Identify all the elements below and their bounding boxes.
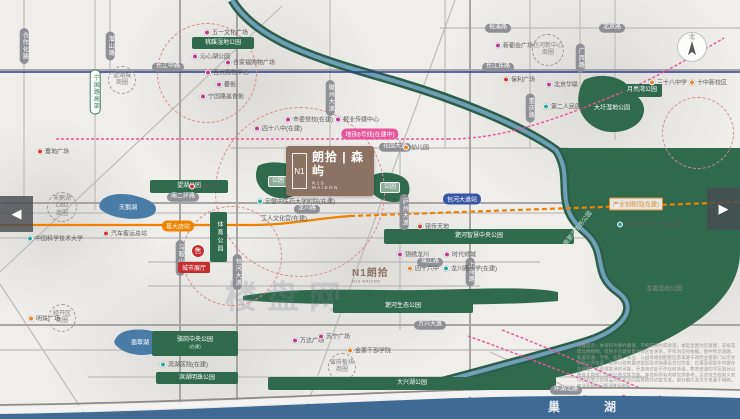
poi-dot-icon xyxy=(443,265,449,271)
poi-label: 第二人民医院 xyxy=(551,102,587,111)
poi-label: 明珠广场 xyxy=(36,314,60,323)
road-pill: 合作化路 xyxy=(20,28,29,64)
road-pill: 长江中路 xyxy=(152,63,184,72)
circle-line1: 省府板块 xyxy=(330,360,354,368)
poi-item: 三十八中学 xyxy=(649,78,687,87)
poi-item: 工人文化宫(在建) xyxy=(261,214,307,223)
road-pill: 重庆路 xyxy=(526,94,535,123)
poi-label: 龙川路小学(在建) xyxy=(451,264,497,273)
circle-line2: 商圈 xyxy=(116,80,128,88)
poi-item: 苏宁广场 xyxy=(318,332,350,341)
poi-label: 锦绣龙川 xyxy=(405,250,429,259)
poi-dot-icon xyxy=(28,315,34,321)
poi-dot-icon xyxy=(649,79,655,85)
park-bar: 淝河智慧中央公园 xyxy=(384,229,574,244)
road-pill: 广西路 xyxy=(576,44,585,73)
poi-label: 滨湖医院(在建) xyxy=(168,360,208,369)
poi-dot-icon xyxy=(495,42,501,48)
park-bar: 公园 xyxy=(380,182,400,193)
poi-item: 第二人民医院 xyxy=(543,102,587,111)
poi-label: 百大购物中心 xyxy=(213,68,249,77)
project-name-en: N1S MAISON xyxy=(312,182,354,191)
road-pill: 庐州大道 xyxy=(400,194,409,230)
poi-item: 十中新校区 xyxy=(689,78,727,87)
poi-label: 市委党校(在建) xyxy=(293,115,333,124)
poi-item: 滨湖医院(在建) xyxy=(160,360,208,369)
project-logo: N1 朗拾 | 森屿 N1S MAISON xyxy=(286,146,374,196)
poi-item: 四十六中 xyxy=(407,264,439,273)
poi-label: 铭传天地 xyxy=(425,222,449,231)
poi-item: 龙川路小学(在建) xyxy=(443,264,497,273)
poi-dot-icon xyxy=(417,223,423,229)
circle-line1: 天鹅湖CBD xyxy=(48,196,76,211)
poi-label: 罍街 xyxy=(224,80,236,89)
park-bar: 淝河生态公园 xyxy=(333,300,473,313)
project-name-cn: 朗拾 | 森屿 xyxy=(312,150,368,179)
road-pill: 宁国路高架 xyxy=(90,70,101,115)
poi-dot-icon xyxy=(444,251,450,257)
park-name: 淝河智慧中央公园 xyxy=(455,233,503,240)
poi-label: 汽车客运总站 xyxy=(111,229,147,238)
poi-item: 明珠广场 xyxy=(28,314,60,323)
circle-line2: 商圈 xyxy=(542,50,554,58)
park-name: 公园 xyxy=(272,178,284,185)
poi-label: 中国科学技术大学 xyxy=(35,234,83,243)
poi-dot-icon xyxy=(204,29,210,35)
poi-item: 百大购物中心 xyxy=(205,68,249,77)
carousel-prev-button[interactable]: ◀ xyxy=(0,196,33,232)
poi-item: 四十八中(在建) xyxy=(254,124,302,133)
poi-dot-icon xyxy=(407,265,413,271)
poi-item: 报业传媒中心 xyxy=(335,115,379,124)
road-pill: 南二环路 xyxy=(167,193,199,202)
poi-label: 五一文化广场 xyxy=(212,28,248,37)
park-bar: 桃蹊湿地公园 xyxy=(192,37,254,49)
poi-dot-icon xyxy=(160,361,166,367)
poi-label: 十中新校区 xyxy=(697,78,727,87)
park-name: 公园 xyxy=(384,184,396,191)
park-name: 滨湖明珠公园 xyxy=(179,375,215,382)
circle-line2: 商圈 xyxy=(56,211,68,219)
poi-item: 置地广场 xyxy=(37,147,69,156)
sales-center-icon: 售 xyxy=(191,244,205,258)
poi-label: 新都会广场 xyxy=(503,41,533,50)
poi-label: 合家福购物广场 xyxy=(233,58,275,67)
metro-line-pink-label: 地铁6号线(在建中) xyxy=(341,129,398,140)
business-circle: 望湖城商圈 xyxy=(108,66,136,94)
location-map: 楼盘网 合作化路潜山路宁国路高架马鞍山路包河大道徽州大道庐州大道上海路重庆路广西… xyxy=(0,0,740,419)
poi-dot-icon xyxy=(318,333,324,339)
sales-center-label: 城市展厅 xyxy=(178,262,210,273)
poi-label: 金寨干部学院 xyxy=(355,346,391,355)
poi-dot-icon xyxy=(257,198,263,204)
poi-dot-icon xyxy=(103,230,109,236)
poi-dot-icon xyxy=(216,81,222,87)
poi-dot-icon xyxy=(403,144,409,150)
poi-dot-icon xyxy=(397,251,403,257)
park-label: 天鹅湖 xyxy=(119,203,137,212)
carousel-next-button[interactable]: ▶ xyxy=(707,188,740,230)
poi-label: 中国科大附一院(在建) xyxy=(625,220,683,229)
poi-item: 汽车客运总站 xyxy=(103,229,147,238)
poi-item: 五一文化广场 xyxy=(204,28,248,37)
park-name: 淝河生态公园 xyxy=(385,303,421,310)
poi-dot-icon xyxy=(225,59,231,65)
poi-item: 安徽中医药大学附院(在建) xyxy=(257,197,335,206)
road-pill: 龙川路 xyxy=(294,205,320,214)
poi-label: 宁国路美食街 xyxy=(208,92,244,101)
poi-item: 中国科学技术大学 xyxy=(27,234,83,243)
poi-item: 宁国路美食街 xyxy=(200,92,244,101)
poi-dot-icon xyxy=(205,69,211,75)
poi-dot-icon xyxy=(254,125,260,131)
poi-label: 工人文化宫(在建) xyxy=(261,214,307,223)
poi-label: 保利广场 xyxy=(511,75,535,84)
circle-line1: 包河新中心 xyxy=(533,43,563,51)
poi-dot-icon xyxy=(27,235,33,241)
poi-dot-icon xyxy=(546,81,552,87)
poi-label: 安徽中医药大学附院(在建) xyxy=(265,197,335,206)
poi-item: 合家福购物广场 xyxy=(225,58,275,67)
circle-line1: 望湖城 xyxy=(113,73,131,81)
poi-dot-icon xyxy=(292,337,298,343)
poi-item: 保利广场 xyxy=(503,75,535,84)
poi-label: 三十八中学 xyxy=(657,78,687,87)
poi-dot-icon xyxy=(189,183,195,189)
park-label: 龙塘湿地公园 xyxy=(646,284,682,293)
poi-item: 幼儿园 xyxy=(403,143,429,152)
poi-dot-icon xyxy=(192,53,198,59)
park-label: 大圩湿地公园 xyxy=(594,103,630,112)
park-bar: 公园 xyxy=(268,176,288,187)
poi-dot-icon xyxy=(335,116,341,122)
sublogo-en: N1S MAISON xyxy=(352,280,380,284)
project-sublogo: N1朗拾 N1S MAISON xyxy=(352,264,399,285)
road-pill: 潜山路 xyxy=(106,32,115,61)
park-bar: 体育公园 xyxy=(210,212,227,262)
park-name: 大兴湖公园 xyxy=(397,380,427,387)
poi-dot-icon xyxy=(285,116,291,122)
poi-label: 报业传媒中心 xyxy=(343,115,379,124)
poi-item: 罍街 xyxy=(216,80,236,89)
park-bar: 滨湖明珠公园 xyxy=(156,372,238,384)
logo-monogram: N1 xyxy=(292,153,307,189)
park-name: 体育公园 xyxy=(215,221,222,253)
poi-dot-icon xyxy=(503,76,509,82)
compass-needle-icon xyxy=(686,41,698,57)
metro-station-orange: 葛大店站 xyxy=(162,221,194,232)
poi-label: 万象城 xyxy=(197,182,215,191)
poi-dot-icon xyxy=(37,148,43,154)
compass: 北 xyxy=(677,32,707,62)
road-pill: 长江东路 xyxy=(482,63,514,72)
poi-label: 四十六中 xyxy=(415,264,439,273)
poi-dot-icon xyxy=(543,103,549,109)
lake-name-chao: 巢 xyxy=(548,398,560,415)
business-circle: 包河新中心商圈 xyxy=(532,34,564,66)
poi-label: 苏宁广场 xyxy=(326,332,350,341)
poi-label: 产业创新园(在建) xyxy=(613,200,659,209)
poi-item: 市委党校(在建) xyxy=(285,115,333,124)
circle-line2: 商圈 xyxy=(336,367,348,375)
poi-item: 铭传天地 xyxy=(417,222,449,231)
poi-label: 置地广场 xyxy=(45,147,69,156)
park-name: 桃蹊湿地公园 xyxy=(205,40,241,47)
poi-item: 产业创新园(在建) xyxy=(609,198,663,211)
poi-item: 金寨干部学院 xyxy=(347,346,391,355)
road-pill: 方兴大道 xyxy=(414,321,446,330)
park-label: 翡翠湖 xyxy=(131,338,149,347)
road-pill: 包河大道 xyxy=(233,254,242,290)
park-bar: 骆岗中央公园(在建) xyxy=(152,331,238,356)
park-name: 月亮湾公园 xyxy=(627,87,657,94)
poi-item: 时代倾城 xyxy=(444,250,476,259)
poi-label: 北京华联 xyxy=(554,80,578,89)
poi-label: 幼儿园 xyxy=(411,143,429,152)
poi-item: 新都会广场 xyxy=(495,41,533,50)
park-name-sub: (在建) xyxy=(189,345,200,350)
radius-circle xyxy=(662,97,734,169)
poi-item: 北京华联 xyxy=(546,80,578,89)
metro-station-blue: 包河大道站 xyxy=(443,194,481,205)
poi-item: 中国科大附一院(在建) xyxy=(617,220,683,229)
poi-dot-icon xyxy=(200,93,206,99)
sublogo-cn: N1朗拾 xyxy=(352,264,399,279)
poi-dot-icon xyxy=(347,347,353,353)
road-pill: 徽州大道 xyxy=(326,80,335,116)
poi-label: 时代倾城 xyxy=(452,250,476,259)
poi-dot-icon xyxy=(617,221,623,227)
park-bar: 大兴湖公园 xyxy=(268,377,556,390)
poi-item: 万象城 xyxy=(189,182,215,191)
business-circle: 天鹅湖CBD商圈 xyxy=(47,192,77,222)
road-pill: 北京路 xyxy=(599,24,625,33)
poi-dot-icon xyxy=(689,79,695,85)
lake-name-hu: 湖 xyxy=(604,398,616,415)
road-pill: 裕溪路 xyxy=(485,24,511,33)
park-name: 骆岗中央公园 xyxy=(177,337,213,344)
poi-label: 四十八中(在建) xyxy=(262,124,302,133)
disclaimer-text: 温馨提示：本资料为要约邀请，不构成要约或承诺。本区位图为示意图，非按实际比例绘制… xyxy=(577,344,735,391)
poi-item: 锦绣龙川 xyxy=(397,250,429,259)
